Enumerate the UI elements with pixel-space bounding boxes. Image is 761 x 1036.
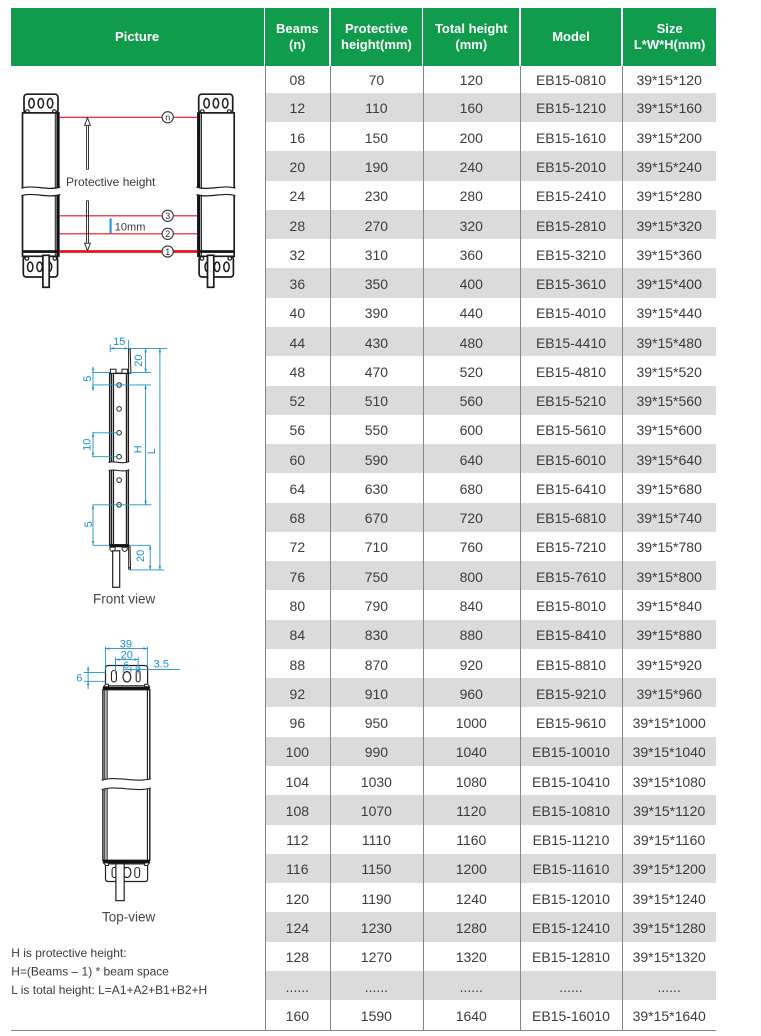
svg-text:L is total height: L=A1+A2+B1+: L is total height: L=A1+A2+B1+B2+H bbox=[11, 983, 207, 997]
svg-text:39: 39 bbox=[120, 638, 132, 650]
svg-text:6: 6 bbox=[76, 672, 82, 684]
svg-text:15: 15 bbox=[113, 336, 125, 348]
svg-text:H=(Beams – 1) * beam space: H=(Beams – 1) * beam space bbox=[11, 965, 169, 979]
svg-text:Top-view: Top-view bbox=[102, 910, 156, 925]
svg-text:Protective height: Protective height bbox=[66, 175, 156, 189]
svg-text:20: 20 bbox=[135, 550, 147, 562]
svg-text:Front view: Front view bbox=[93, 592, 156, 607]
svg-text:n: n bbox=[165, 113, 170, 123]
svg-text:5: 5 bbox=[83, 521, 95, 527]
svg-text:H is protective height:: H is protective height: bbox=[11, 946, 126, 960]
svg-text:3: 3 bbox=[165, 211, 170, 221]
svg-text:20: 20 bbox=[133, 354, 145, 366]
svg-text:3.5: 3.5 bbox=[154, 659, 169, 671]
svg-text:L: L bbox=[146, 448, 158, 454]
svg-text:H: H bbox=[132, 445, 144, 453]
svg-text:6: 6 bbox=[124, 660, 130, 671]
svg-text:10: 10 bbox=[82, 439, 94, 451]
svg-text:2: 2 bbox=[165, 229, 170, 239]
svg-text:1: 1 bbox=[165, 247, 170, 257]
svg-text:10mm: 10mm bbox=[115, 222, 146, 234]
svg-text:5: 5 bbox=[82, 376, 94, 382]
